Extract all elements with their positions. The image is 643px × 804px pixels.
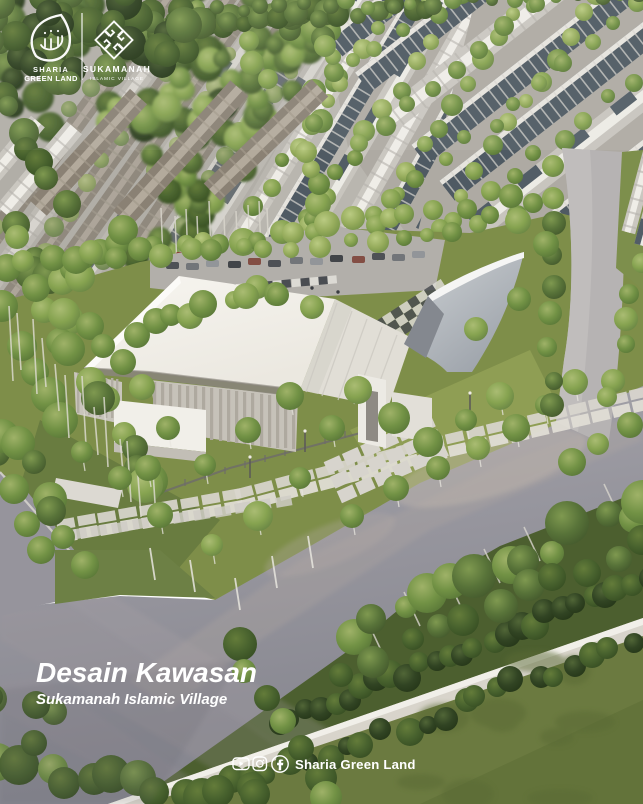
svg-text:ISLAMIC VILLAGE: ISLAMIC VILLAGE (90, 76, 144, 82)
svg-text:Sukamanah Islamic Village: Sukamanah Islamic Village (36, 691, 227, 708)
svg-text:Desain Kawasan: Desain Kawasan (36, 657, 257, 688)
svg-text:SUKAMANAH: SUKAMANAH (83, 64, 151, 74)
svg-text:Sharia Green Land: Sharia Green Land (295, 757, 416, 772)
svg-text:SHARIA: SHARIA (33, 65, 69, 74)
svg-text:GREEN LAND: GREEN LAND (24, 74, 78, 83)
